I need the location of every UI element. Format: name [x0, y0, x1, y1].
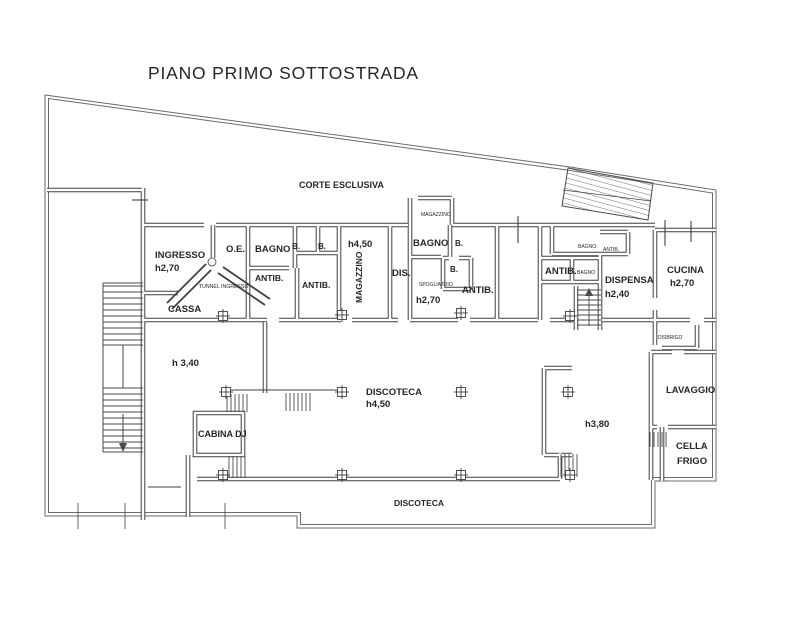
column-symbol	[335, 385, 349, 399]
label-sala-height: h3,80	[585, 419, 609, 430]
cabina-dj-steps-bottom	[229, 456, 245, 478]
label-dispensa-height: h2,40	[605, 289, 629, 300]
label-bagno-b: BAGNO	[413, 238, 448, 249]
room-labels: CORTE ESCLUSIVAINGRESSOh2,70O.E.TUNNEL I…	[155, 180, 715, 508]
label-cassa: CASSA	[168, 304, 201, 315]
column-symbol	[454, 385, 468, 399]
label-bagno-c2: BAGNO	[577, 270, 595, 276]
label-antib-a1: ANTIB.	[255, 273, 283, 283]
label-b-a1: B.	[292, 242, 300, 251]
building-walls-core	[47, 188, 716, 520]
label-discoteca-height: h4,50	[366, 399, 390, 410]
column-symbol	[216, 468, 230, 482]
column-symbol	[335, 468, 349, 482]
label-lavaggio: LAVAGGIO	[666, 385, 715, 396]
cabina-dj-steps-top-right	[286, 393, 310, 411]
stair-arrow-up	[585, 288, 593, 296]
column-symbol	[454, 306, 468, 320]
label-magazzino-small: MAGAZZINO	[421, 212, 451, 218]
label-bagno-a: BAGNO	[255, 244, 290, 255]
label-cucina-height: h2,70	[670, 278, 694, 289]
label-disbrigo: DISBRIGO	[658, 335, 683, 341]
floor-plan-drawing: CORTE ESCLUSIVAINGRESSOh2,70O.E.TUNNEL I…	[0, 0, 800, 625]
label-magazzino-vertical: MAGAZZINO	[354, 251, 364, 303]
label-dispensa: DISPENSA	[605, 275, 654, 286]
label-b-b2: B.	[450, 265, 458, 274]
label-antib-a2: ANTIB.	[302, 280, 330, 290]
outer-boundary	[45, 95, 716, 529]
label-tunnel-ingresso: TUNNEL INGRESSO	[199, 284, 248, 290]
label-antib-b: ANTIB.	[462, 285, 494, 296]
column-symbol	[454, 468, 468, 482]
label-b-b1: B.	[455, 239, 463, 248]
column-symbol	[563, 468, 577, 482]
label-antib-c: ANTIB.	[545, 266, 577, 277]
main-staircase	[103, 283, 143, 452]
column-symbol	[561, 385, 575, 399]
label-discoteca-main: DISCOTECA	[366, 387, 422, 398]
label-frigo: FRIGO	[677, 456, 707, 467]
label-ingresso: INGRESSO	[155, 250, 205, 261]
label-dis: DIS.	[392, 268, 410, 279]
ramp-hatched	[562, 168, 653, 220]
column-symbol	[335, 308, 349, 322]
label-discoteca-bottom: DISCOTECA	[394, 498, 444, 508]
column-symbol	[563, 309, 577, 323]
label-antib-c1: ANTIB.	[603, 247, 619, 253]
label-cabina-dj: CABINA DJ	[198, 429, 247, 439]
label-magazzino-height: h4,50	[348, 239, 372, 250]
label-bagno-c1: BAGNO	[578, 244, 596, 250]
label-ingresso-height: h2,70	[155, 263, 179, 274]
label-cucina: CUCINA	[667, 265, 704, 276]
page-title: PIANO PRIMO SOTTOSTRADA	[148, 63, 419, 83]
column-symbol	[219, 385, 233, 399]
door-swing	[208, 258, 216, 266]
label-corte-esclusiva: CORTE ESCLUSIVA	[299, 180, 384, 190]
label-cassa-height: h 3,40	[172, 358, 199, 369]
label-spogliatoio: SPOGLIATOIO	[419, 282, 453, 288]
label-spogliatoio-height: h2,70	[416, 295, 440, 306]
label-b-a2: B.	[318, 242, 326, 251]
building-walls	[47, 188, 716, 520]
floor-plan-page: CORTE ESCLUSIVAINGRESSOh2,70O.E.TUNNEL I…	[0, 0, 800, 625]
label-cella: CELLA	[676, 441, 708, 452]
label-oe-room: O.E.	[226, 244, 245, 255]
column-symbol	[216, 309, 230, 323]
